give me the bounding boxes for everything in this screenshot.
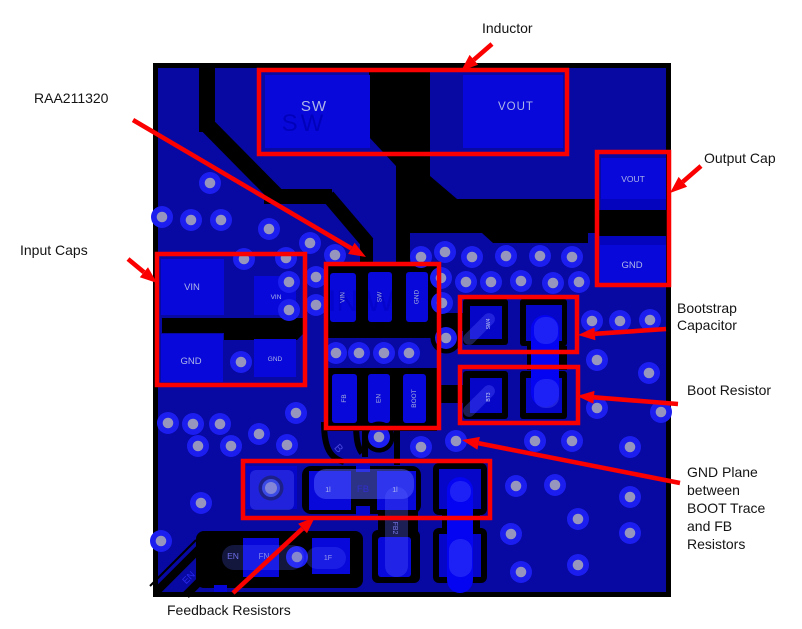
svg-text:FB: FB	[341, 394, 348, 402]
svg-text:1l: 1l	[392, 487, 398, 494]
svg-text:BOOT: BOOT	[411, 389, 418, 407]
svg-text:SW: SW	[377, 291, 384, 302]
svg-text:VIN: VIN	[184, 282, 200, 293]
svg-text:VOUT: VOUT	[498, 101, 534, 113]
svg-text:FB: FB	[357, 484, 369, 495]
svg-text:between: between	[687, 482, 740, 498]
svg-text:Bootstrap: Bootstrap	[677, 300, 737, 316]
svg-text:Output Cap: Output Cap	[704, 150, 776, 166]
svg-text:SW4: SW4	[486, 318, 492, 329]
svg-text:and FB: and FB	[687, 518, 732, 534]
svg-text:1l: 1l	[325, 487, 331, 494]
svg-text:Feedback Resistors: Feedback Resistors	[167, 602, 291, 618]
svg-text:1F: 1F	[324, 555, 332, 562]
svg-text:BOOT Trace: BOOT Trace	[687, 500, 766, 516]
svg-text:Boot Resistor: Boot Resistor	[687, 382, 771, 398]
svg-text:GND: GND	[180, 356, 201, 367]
svg-text:EN: EN	[227, 551, 239, 561]
svg-text:FB2: FB2	[391, 522, 398, 535]
svg-text:Input Caps: Input Caps	[20, 242, 88, 258]
svg-text:GND: GND	[621, 260, 642, 271]
svg-text:VIN: VIN	[340, 292, 347, 303]
svg-text:EN: EN	[376, 394, 383, 403]
svg-text:GND: GND	[414, 289, 421, 304]
svg-text:VOUT: VOUT	[621, 174, 645, 184]
svg-text:Resistors: Resistors	[687, 536, 745, 552]
svg-text:VIN: VIN	[271, 294, 282, 301]
svg-text:GND: GND	[268, 356, 283, 363]
svg-text:BT3: BT3	[486, 392, 492, 401]
svg-text:Inductor: Inductor	[482, 20, 533, 36]
svg-text:SW: SW	[301, 98, 327, 115]
svg-text:GND Plane: GND Plane	[687, 464, 758, 480]
svg-text:RAA211320: RAA211320	[34, 90, 109, 106]
svg-text:Capacitor: Capacitor	[677, 317, 737, 333]
